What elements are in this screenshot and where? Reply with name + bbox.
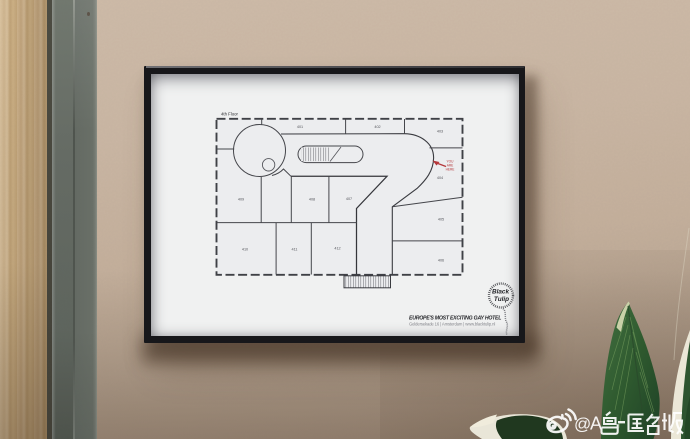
svg-text:@: @ [574, 414, 591, 433]
svg-text:A: A [590, 414, 602, 434]
